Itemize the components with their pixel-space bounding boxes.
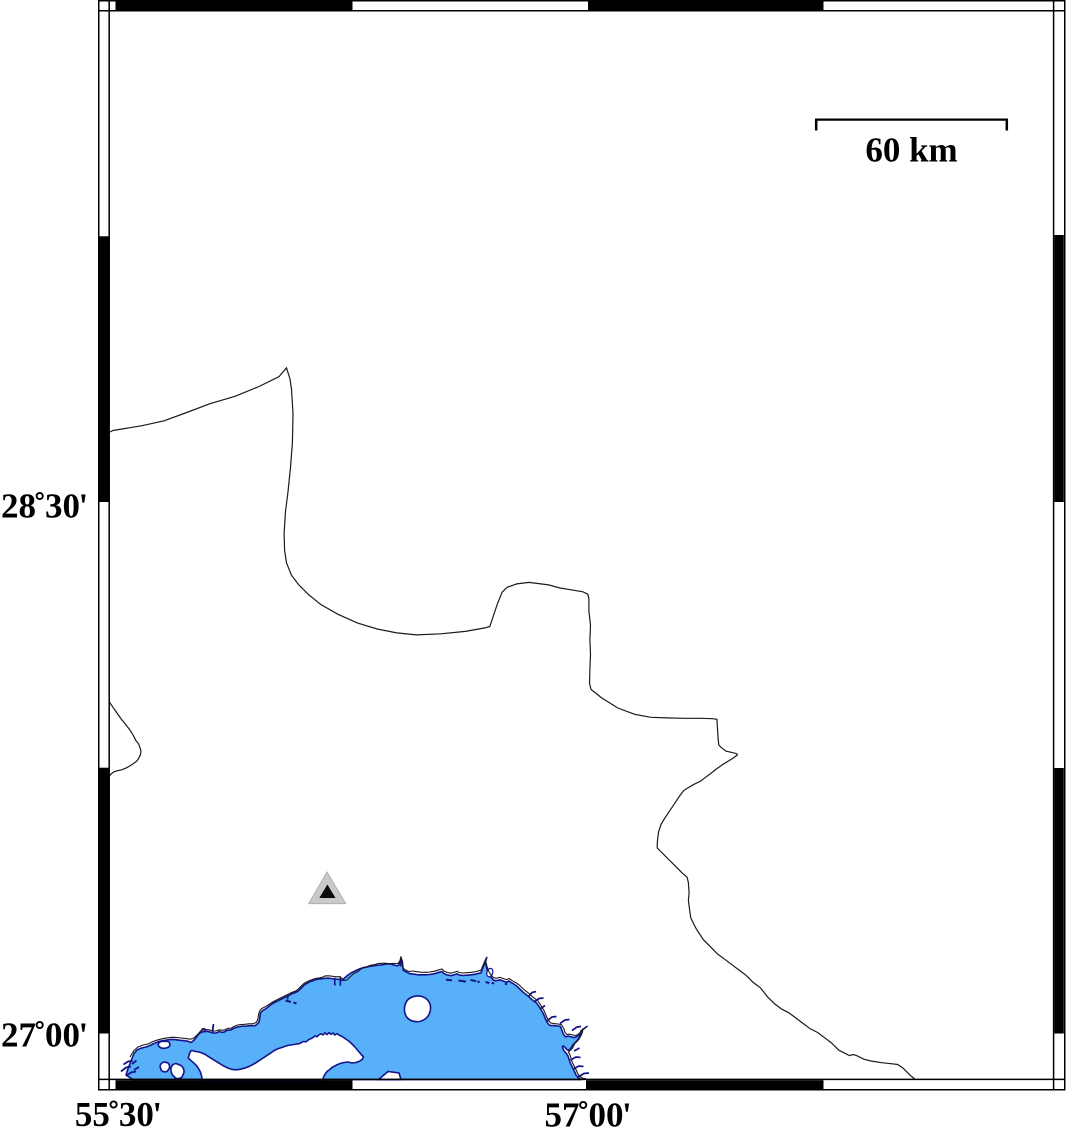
svg-text:30: 30 [45,487,80,526]
svg-text:55: 55 [75,1095,110,1128]
svg-text:60 km: 60 km [865,131,957,170]
svg-text:27: 27 [1,1016,36,1055]
svg-text:30: 30 [119,1095,154,1128]
svg-text:': ' [79,1016,89,1055]
svg-text:28: 28 [1,487,36,526]
svg-text:00: 00 [589,1096,624,1128]
svg-text:': ' [152,1095,162,1128]
svg-text:': ' [79,487,89,526]
svg-text:00: 00 [45,1016,80,1055]
svg-text:': ' [622,1096,632,1128]
svg-text:57: 57 [545,1096,580,1128]
